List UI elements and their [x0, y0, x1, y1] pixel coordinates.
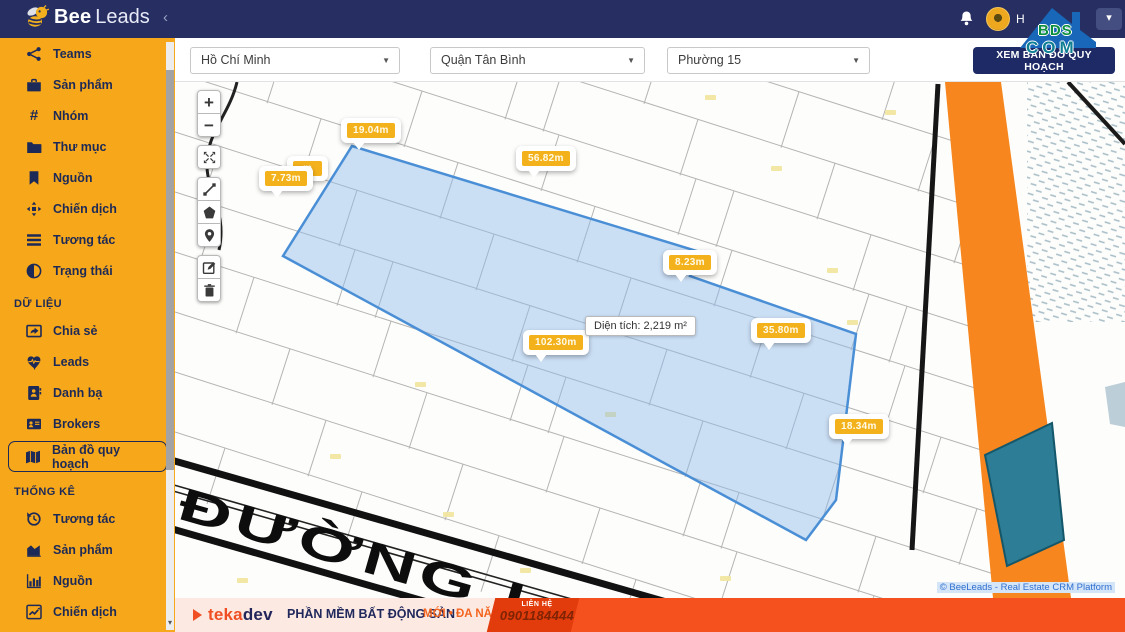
measurement-value: 56.82m: [522, 151, 570, 166]
zoom-in-button[interactable]: +: [197, 90, 221, 114]
sidebar-item-tuong-tac[interactable]: Tương tác: [0, 224, 175, 255]
map-icon: [25, 449, 41, 465]
area-tooltip: Diện tích: 2,219 m²: [585, 316, 696, 336]
sidebar-item-label: Sản phẩm: [53, 78, 113, 92]
sidebar-item-nhom[interactable]: #Nhóm: [0, 100, 175, 131]
chevron-down-icon: ▼: [627, 56, 635, 65]
bookmark-icon: [26, 170, 42, 186]
measurement-label[interactable]: 35.80m: [751, 318, 811, 343]
sidebar-item-label: Trạng thái: [53, 264, 113, 278]
sidebar-item-tk-nguon[interactable]: Nguồn: [0, 565, 175, 596]
measurement-value: 102.30m: [529, 335, 583, 350]
sidebar-item-label: Nguồn: [53, 171, 93, 185]
sidebar-item-label: Sản phẩm: [53, 543, 113, 557]
user-name: h: [1072, 12, 1079, 26]
sidebar-item-thu-muc[interactable]: Thư mục: [0, 131, 175, 162]
measurement-label[interactable]: 7.73m: [259, 166, 313, 191]
sidebar-item-label: Brokers: [53, 417, 100, 431]
heartbeat-icon: [26, 354, 42, 370]
sidebar-item-ban-do-quy-hoach[interactable]: Bản đồ quy hoạch: [8, 441, 167, 472]
measurement-value: 8.23m: [669, 255, 711, 270]
contact-phone[interactable]: 0901184444: [499, 608, 575, 623]
measurement-value: 35.80m: [757, 323, 805, 338]
sidebar-section-header: DỮ LIỆU: [0, 286, 175, 315]
measurement-value: 18.34m: [835, 419, 883, 434]
sidebar-collapse-chevron[interactable]: ‹: [163, 9, 168, 26]
sidebar-item-brokers[interactable]: Brokers: [0, 408, 175, 439]
draw-polygon-icon: [202, 205, 217, 220]
sidebar-item-tk-tuong-tac[interactable]: Tương tác: [0, 503, 175, 534]
sidebar-item-leads[interactable]: Leads: [0, 346, 175, 377]
measurement-value: 19.04m: [347, 123, 395, 138]
user-name: H: [1016, 12, 1025, 26]
measurement-label[interactable]: 56.82m: [516, 146, 576, 171]
sidebar-item-label: Danh bạ: [53, 386, 102, 400]
sidebar-item-tk-chien-dich[interactable]: Chiến dịch: [0, 596, 175, 627]
ward-select[interactable]: Phường 15 ▼: [667, 47, 870, 74]
zoom-in-icon: +: [204, 94, 214, 111]
edit-icon: [202, 260, 217, 275]
footer-banner: tekadev PHẦN MỀM BẤT ĐỘNG SẢN MỚI • ĐA N…: [175, 598, 1125, 632]
measure-line-icon: [202, 182, 217, 197]
area-chart-icon: [26, 542, 42, 558]
brand-suffix: dev: [243, 605, 273, 624]
status-half-circle-icon: [26, 263, 42, 279]
sidebar-item-nguon[interactable]: Nguồn: [0, 162, 175, 193]
hash-icon: #: [26, 108, 42, 124]
measurement-label[interactable]: 102.30m: [523, 330, 589, 355]
sidebar-item-label: Tương tác: [53, 512, 115, 526]
sidebar-item-san-pham[interactable]: Sản phẩm: [0, 69, 175, 100]
province-value: Hồ Chí Minh: [201, 53, 270, 67]
measurement-label[interactable]: 19.04m: [341, 118, 401, 143]
zoom-out-button[interactable]: −: [197, 113, 221, 137]
sidebar-item-label: Nhóm: [53, 109, 88, 123]
sidebar-item-tk-san-pham[interactable]: Sản phẩm: [0, 534, 175, 565]
tekadev-logo: tekadev: [208, 605, 273, 625]
sidebar-item-label: Chia sẻ: [53, 324, 97, 338]
logo-text-bold: Bee: [54, 6, 91, 29]
map-toolbar: +−: [197, 90, 221, 310]
beeleads-logo[interactable]: BeeLeads: [24, 4, 150, 30]
map-toolbar-group: +−: [197, 90, 221, 137]
province-select[interactable]: Hồ Chí Minh ▼: [190, 47, 400, 74]
line-chart-icon: [26, 604, 42, 620]
contact-block: LIÊN HỆ 0901184444: [499, 601, 575, 623]
brand-prefix: teka: [208, 605, 243, 624]
briefcase-icon: [26, 77, 42, 93]
logo-text-light: Leads: [95, 6, 150, 29]
topbar: BeeLeads ‹ H h ▾: [0, 0, 1125, 38]
list-icon: [26, 232, 42, 248]
measure-line-button[interactable]: [197, 177, 221, 201]
folder-icon: [26, 139, 42, 155]
history-icon: [26, 511, 42, 527]
draw-polygon-button[interactable]: [197, 200, 221, 224]
map-toolbar-group: [197, 145, 221, 169]
share-icon: [26, 46, 42, 62]
sidebar-item-chia-se[interactable]: Chia sẻ: [0, 315, 175, 346]
user-menu-chevron[interactable]: ▾: [1096, 8, 1122, 30]
campaign-icon: [26, 201, 42, 217]
scrollbar-down-arrow[interactable]: ▾: [166, 618, 174, 627]
edit-button[interactable]: [197, 255, 221, 279]
sidebar-item-label: Thư mục: [53, 140, 107, 154]
fullscreen-icon: [202, 150, 217, 165]
district-value: Quận Tân Bình: [441, 53, 526, 67]
measurement-label[interactable]: 8.23m: [663, 250, 717, 275]
sidebar-item-label: Bản đồ quy hoạch: [52, 443, 158, 471]
scrollbar-thumb[interactable]: [166, 70, 174, 470]
app: BeeLeads ‹ H h ▾ TeamsSản phẩm#NhómThư m…: [0, 0, 1125, 632]
marker-icon: [202, 228, 217, 243]
sidebar-item-label: Teams: [53, 47, 92, 61]
id-card-icon: [26, 416, 42, 432]
map-canvas[interactable]: ĐƯỜNG LG10 +− 19.04mm7.73m56.82m8.23m35.…: [175, 82, 1125, 598]
measurement-value: 7.73m: [265, 171, 307, 186]
sidebar-item-chien-dich[interactable]: Chiến dịch: [0, 193, 175, 224]
ward-value: Phường 15: [678, 53, 741, 67]
footer-orange-band: [567, 598, 1125, 632]
map-toolbar-group: [197, 177, 221, 247]
sidebar-item-trang-thai[interactable]: Trạng thái: [0, 255, 175, 286]
sidebar-item-label: Chiến dịch: [53, 605, 117, 619]
zoom-out-icon: −: [204, 117, 214, 134]
address-book-icon: [26, 385, 42, 401]
bar-chart-icon: [26, 573, 42, 589]
fullscreen-button[interactable]: [197, 145, 221, 169]
sidebar-nav: TeamsSản phẩm#NhómThư mụcNguồnChiến dịch…: [0, 38, 175, 632]
sidebar-item-label: Tương tác: [53, 233, 115, 247]
chevron-down-icon: ▼: [382, 56, 390, 65]
sidebar-item-label: Nguồn: [53, 574, 93, 588]
delete-button[interactable]: [197, 278, 221, 302]
flag-icon: [193, 609, 202, 621]
filter-bar: Hồ Chí Minh ▼ Quận Tân Bình ▼ Phường 15 …: [175, 38, 1125, 82]
sidebar-item-label: Leads: [53, 355, 89, 369]
map-attribution: © BeeLeads - Real Estate CRM Platform: [937, 582, 1115, 593]
sidebar-item-danh-ba[interactable]: Danh bạ: [0, 377, 175, 408]
bee-icon: [24, 4, 50, 30]
notification-bell-icon[interactable]: [958, 10, 975, 27]
sidebar-item-teams[interactable]: Teams: [0, 38, 175, 69]
delete-icon: [202, 283, 217, 298]
measurement-label[interactable]: 18.34m: [829, 414, 889, 439]
planning-hatch-zone: [1027, 82, 1125, 322]
map-toolbar-group: [197, 255, 221, 302]
marker-button[interactable]: [197, 223, 221, 247]
contact-label: LIÊN HỆ: [499, 601, 575, 608]
sidebar-section-header: THỐNG KÊ: [0, 474, 175, 503]
district-select[interactable]: Quận Tân Bình ▼: [430, 47, 645, 74]
sidebar-scrollbar[interactable]: [166, 42, 174, 630]
sidebar-item-label: Chiến dịch: [53, 202, 117, 216]
view-planning-map-button[interactable]: XEM BẢN ĐỒ QUY HOẠCH: [973, 47, 1115, 74]
share-box-icon: [26, 323, 42, 339]
user-avatar[interactable]: [986, 7, 1010, 31]
chevron-down-icon: ▼: [852, 56, 860, 65]
